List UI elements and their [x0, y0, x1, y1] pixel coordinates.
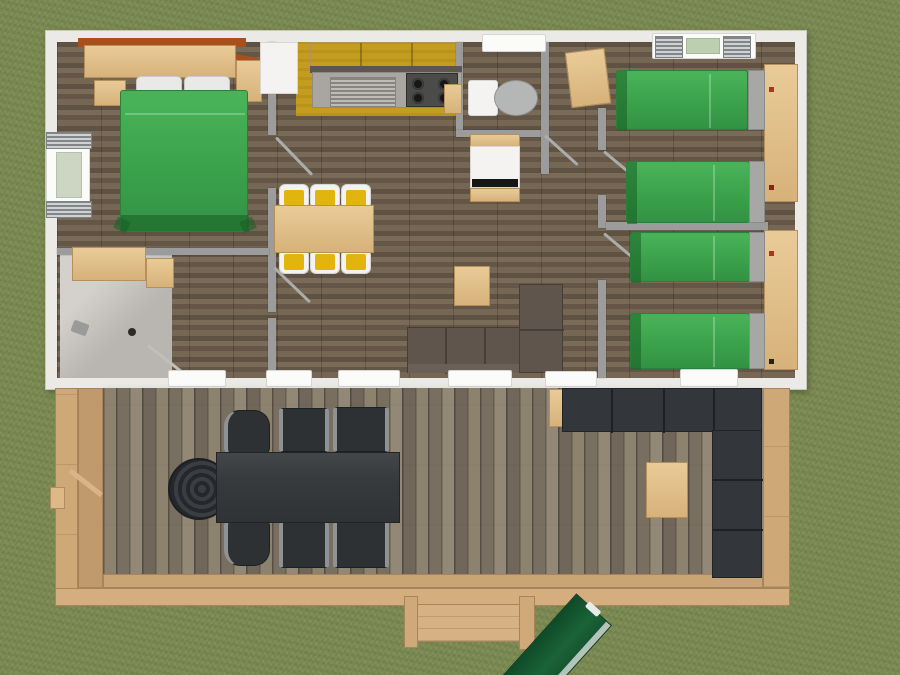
sofa-vertical: [519, 284, 563, 373]
deck-steps: [414, 604, 520, 642]
sliding-door: [448, 370, 512, 387]
outdoor-chair: [224, 410, 270, 454]
single-bed: [626, 161, 750, 223]
sink-drainer: [330, 77, 396, 107]
kitchen-column-cupboard: [260, 42, 298, 94]
window-glass: [686, 38, 720, 54]
shower-drain: [128, 328, 136, 336]
dining-table: [274, 205, 374, 253]
outdoor-chair: [279, 408, 329, 452]
coffee-table: [454, 266, 490, 306]
window-shutter-rail: [723, 36, 751, 58]
desk-shelf-bedroom3: [764, 230, 798, 370]
outdoor-chair: [279, 522, 329, 568]
bedroom-cabinet: [72, 247, 146, 281]
kitchen-upper-cabinets: [310, 42, 462, 68]
sliding-door: [266, 370, 312, 387]
desk-shelf-bedroom2: [764, 64, 798, 202]
deck-coffee-table: [646, 462, 688, 518]
sliding-door: [168, 370, 226, 387]
sliding-door: [545, 371, 597, 387]
window-bedroom3-bottom: [680, 369, 738, 387]
single-bed: [630, 232, 750, 282]
wall-wc-right: [541, 42, 549, 174]
outdoor-dining-table: [216, 452, 400, 523]
window-shutter-rail: [655, 36, 683, 58]
outdoor-sofa-right: [712, 430, 762, 578]
window-glass: [56, 152, 82, 198]
outdoor-chair: [224, 520, 270, 566]
hall-wardrobe: [565, 48, 612, 108]
wall-bedrooms-a: [598, 108, 606, 150]
bed-headboard: [749, 232, 765, 282]
counter-return: [444, 84, 462, 114]
sofa-horizontal: [407, 327, 523, 373]
single-bed: [616, 70, 748, 130]
floorplan-render: [0, 0, 900, 675]
window-shutter-rail: [46, 201, 92, 218]
outdoor-chair: [333, 522, 389, 568]
bed-headboard: [749, 161, 765, 223]
bedroom-cabinet-small: [146, 258, 174, 288]
window-shutter-rail: [46, 132, 92, 149]
bed-headboard: [748, 70, 765, 130]
fridge-base: [470, 188, 520, 202]
window-wc-top: [482, 34, 546, 52]
step-post: [404, 596, 418, 648]
deck-rail-post: [50, 487, 65, 509]
sliding-door: [338, 370, 400, 387]
fridge-handle: [472, 179, 518, 187]
bed-headboard: [749, 313, 765, 369]
headboard-shelf: [84, 45, 236, 78]
double-bed: [120, 90, 248, 232]
wall-master-right-lower: [268, 318, 276, 378]
wall-bedrooms-b: [598, 195, 606, 228]
wall-bedrooms-c: [598, 280, 606, 378]
deck-rail-right: [763, 388, 790, 588]
toilet-lid: [494, 80, 538, 116]
lounge-side-table: [549, 389, 563, 427]
outdoor-sofa-top: [562, 388, 762, 432]
outdoor-chair: [333, 407, 389, 452]
deck-edge-boards: [103, 574, 763, 588]
single-bed: [630, 313, 750, 369]
